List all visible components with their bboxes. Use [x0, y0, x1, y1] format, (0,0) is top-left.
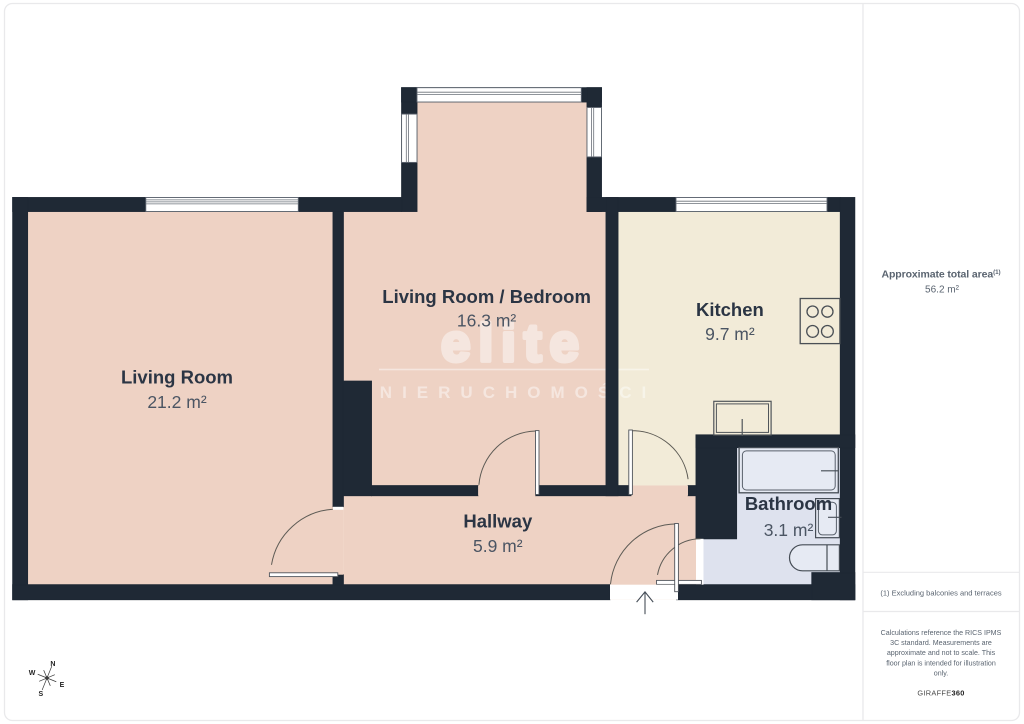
svg-text:Hallway: Hallway [463, 511, 533, 532]
svg-text:Approximate total area(1): Approximate total area(1) [882, 269, 1001, 281]
svg-text:56.2 m²: 56.2 m² [925, 285, 960, 296]
svg-text:S: S [38, 691, 43, 698]
svg-text:Living Room: Living Room [121, 367, 233, 388]
svg-text:3.1 m²: 3.1 m² [764, 520, 814, 540]
svg-text:21.2 m²: 21.2 m² [147, 392, 206, 412]
svg-text:3C standard. Measurements are: 3C standard. Measurements are [890, 639, 992, 647]
svg-text:(1) Excluding balconies and te: (1) Excluding balconies and terraces [880, 589, 1002, 598]
svg-text:16.3 m²: 16.3 m² [457, 311, 516, 331]
svg-text:Kitchen: Kitchen [696, 299, 764, 320]
svg-text:only.: only. [934, 670, 948, 678]
svg-text:9.7 m²: 9.7 m² [705, 324, 755, 344]
svg-text:Calculations reference the RIC: Calculations reference the RICS IPMS [881, 629, 1002, 637]
svg-text:W: W [29, 670, 36, 677]
svg-text:GIRAFFE360: GIRAFFE360 [917, 689, 964, 698]
svg-text:floor plan is intended for ill: floor plan is intended for illustration [886, 659, 996, 667]
svg-text:Bathroom: Bathroom [745, 493, 832, 514]
svg-text:5.9 m²: 5.9 m² [473, 536, 523, 556]
svg-text:approximate and not to scale.: approximate and not to scale. This [887, 649, 996, 657]
svg-text:Living Room / Bedroom: Living Room / Bedroom [382, 286, 591, 307]
svg-text:E: E [60, 682, 65, 689]
svg-text:N: N [50, 661, 55, 668]
